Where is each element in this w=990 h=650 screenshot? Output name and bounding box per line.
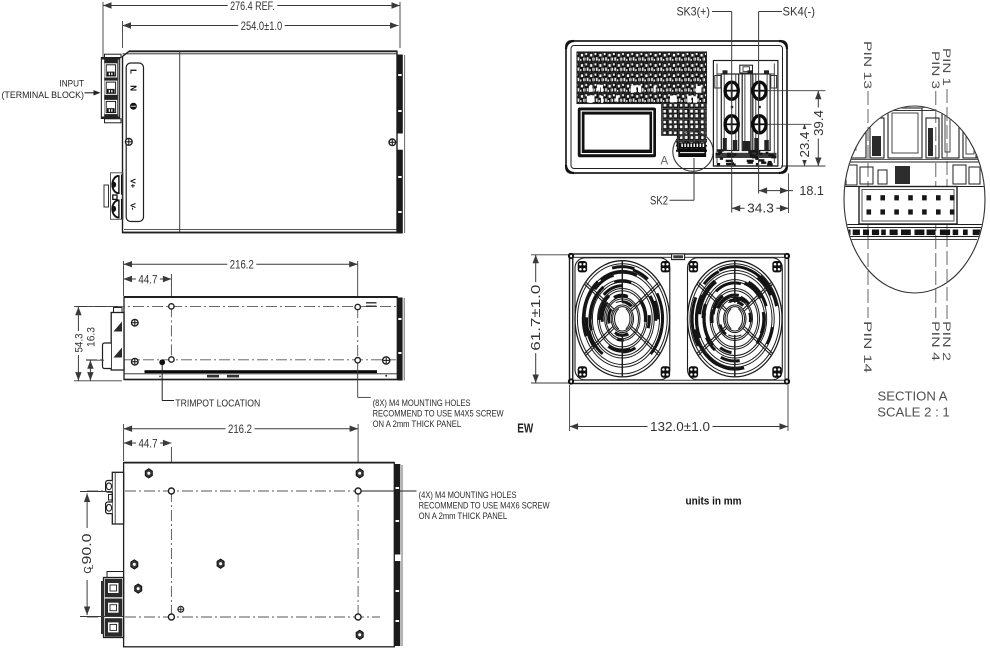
svg-text:PIN 1: PIN 1 <box>940 48 952 86</box>
svg-text:216.2: 216.2 <box>228 424 252 436</box>
svg-text:SK3(+): SK3(+) <box>676 4 710 18</box>
svg-text:PIN 13: PIN 13 <box>861 41 873 89</box>
svg-text:SK4(-): SK4(-) <box>783 4 816 18</box>
svg-text:INPUT: INPUT <box>60 78 85 89</box>
svg-text:ON A 2mm THICK PANEL: ON A 2mm THICK PANEL <box>373 419 462 430</box>
svg-text:44.7: 44.7 <box>138 274 157 286</box>
svg-text:PIN 2: PIN 2 <box>940 321 952 361</box>
svg-text:V-: V- <box>129 203 138 211</box>
svg-text:RECOMMEND TO USE M4X5 SCREW: RECOMMEND TO USE M4X5 SCREW <box>373 409 504 420</box>
svg-text:61.7±1.0: 61.7±1.0 <box>529 285 543 351</box>
svg-text:PIN 14: PIN 14 <box>861 321 873 373</box>
svg-text:39.4: 39.4 <box>812 110 826 136</box>
svg-text:EW: EW <box>517 421 533 435</box>
svg-text:SCALE 2 : 1: SCALE 2 : 1 <box>877 406 950 420</box>
svg-text:34.3: 34.3 <box>747 202 774 216</box>
svg-text:(4X) M4 MOUNTING HOLES: (4X) M4 MOUNTING HOLES <box>419 490 517 501</box>
svg-text:(8X) M4 MOUNTING HOLES: (8X) M4 MOUNTING HOLES <box>373 398 471 409</box>
svg-text:units in mm: units in mm <box>686 496 742 508</box>
svg-text:90.0: 90.0 <box>80 533 94 564</box>
svg-text:N: N <box>129 85 138 91</box>
svg-text:L: L <box>85 564 95 569</box>
svg-text:(TERMINAL BLOCK): (TERMINAL BLOCK) <box>2 90 85 101</box>
svg-text:PIN 3: PIN 3 <box>929 51 941 89</box>
svg-text:18.1: 18.1 <box>799 184 824 198</box>
svg-text:16.3: 16.3 <box>85 327 97 347</box>
svg-text:L: L <box>129 69 138 74</box>
svg-text:254.0±1.0: 254.0±1.0 <box>241 21 283 33</box>
svg-text:A: A <box>660 156 668 168</box>
svg-text:23.4: 23.4 <box>798 131 812 157</box>
svg-text:TRIMPOT LOCATION: TRIMPOT LOCATION <box>175 398 260 409</box>
svg-text:ON A 2mm THICK PANEL: ON A 2mm THICK PANEL <box>419 511 508 522</box>
svg-text:SECTION A: SECTION A <box>878 390 949 404</box>
svg-text:44.7: 44.7 <box>139 438 158 450</box>
svg-text:216.2: 216.2 <box>230 260 254 272</box>
svg-text:RECOMMEND TO USE M4X6 SCREW: RECOMMEND TO USE M4X6 SCREW <box>419 501 550 512</box>
svg-text:132.0±1.0: 132.0±1.0 <box>650 420 710 434</box>
svg-text:V+: V+ <box>129 179 138 189</box>
svg-text:PIN 4: PIN 4 <box>929 321 941 361</box>
svg-text:276.4 REF.: 276.4 REF. <box>230 1 275 13</box>
svg-text:SK2: SK2 <box>650 193 668 207</box>
svg-text:54.3: 54.3 <box>73 334 85 353</box>
